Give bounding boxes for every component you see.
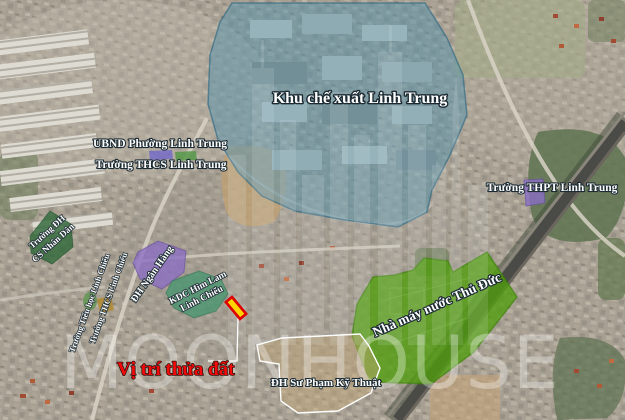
map-viewport: MOONHOUSE Khu chế xuất Linh Trung UBND P… bbox=[0, 0, 625, 420]
label-ubnd: UBND Phường Linh Trung bbox=[93, 138, 227, 150]
label-thcs-linh-trung: Trường THCS Linh Trung bbox=[96, 159, 227, 171]
label-spkt: ĐH Sư Phạm Kỹ Thuật bbox=[271, 377, 382, 389]
satellite-map-image: MOONHOUSE Khu chế xuất Linh Trung UBND P… bbox=[0, 0, 625, 420]
label-thpt-linh-trung: Trường THPT Linh Trung bbox=[487, 182, 618, 194]
label-plot-location: Vị trí thửa đất bbox=[117, 359, 235, 380]
label-export-zone: Khu chế xuất Linh Trung bbox=[273, 90, 448, 107]
